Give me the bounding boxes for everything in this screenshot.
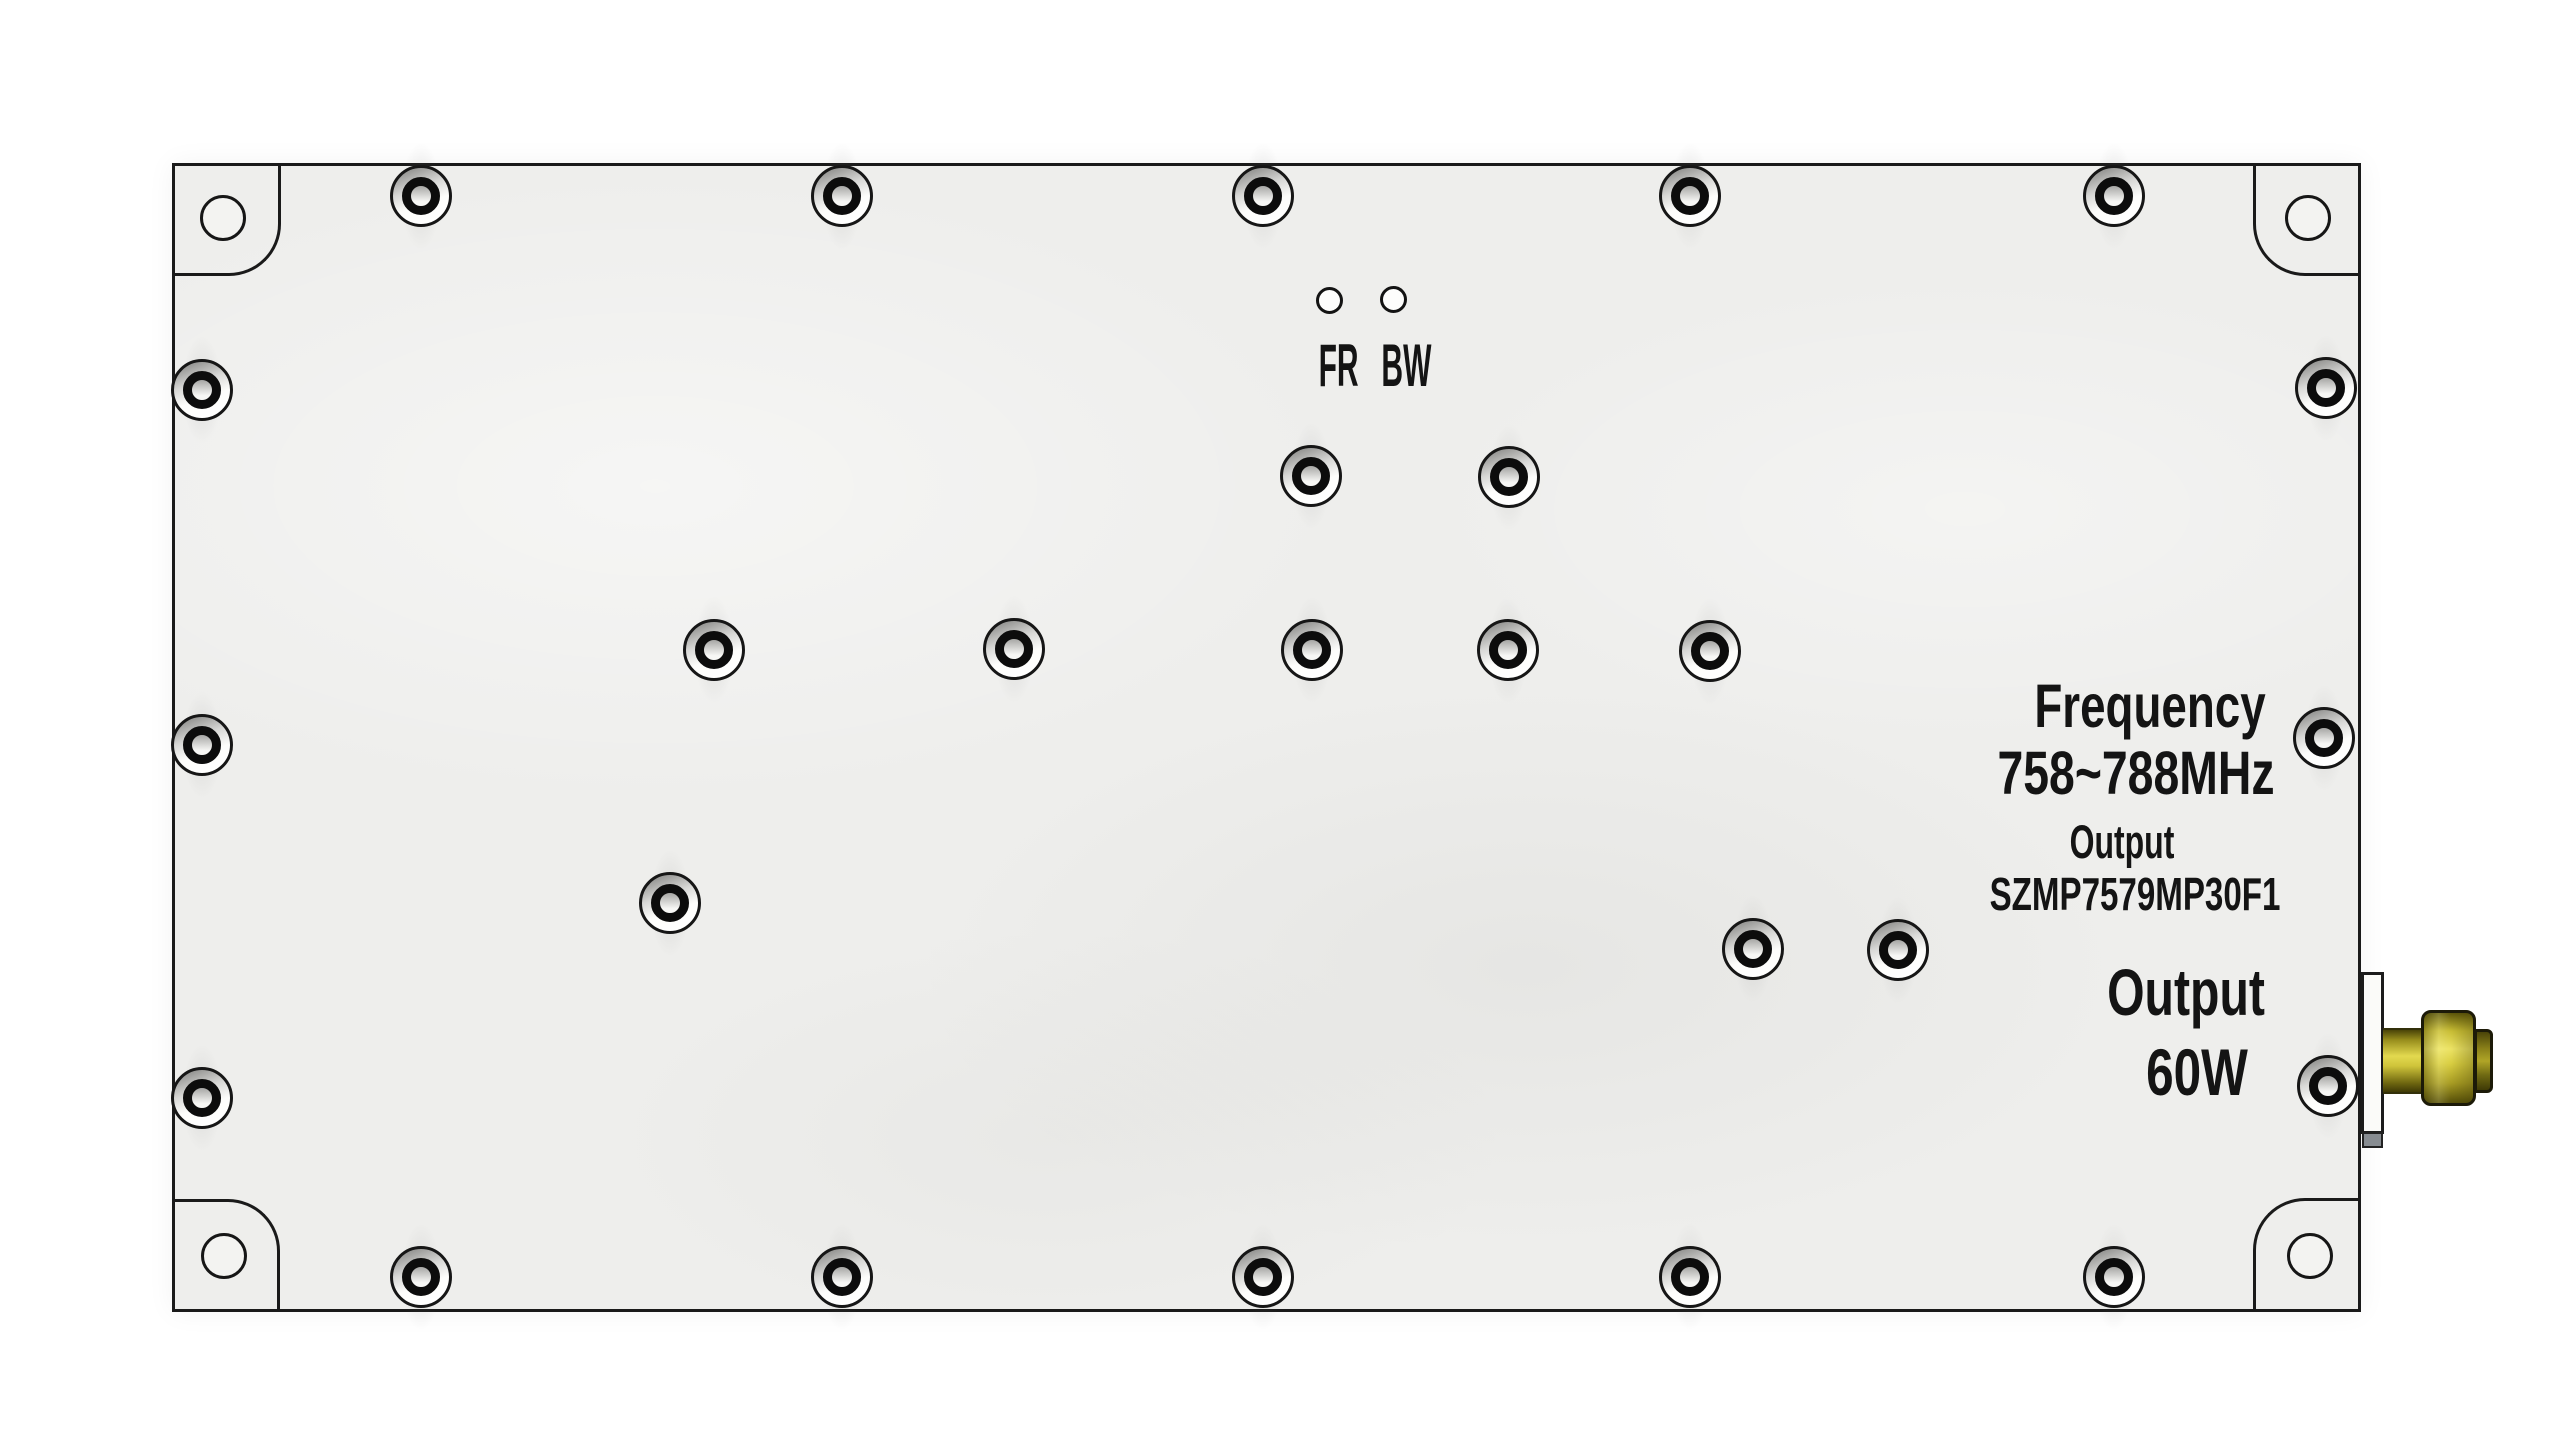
panel-screw (171, 714, 233, 776)
panel-screw (2295, 357, 2357, 419)
panel-screw (2083, 1246, 2145, 1308)
panel-screw (1659, 165, 1721, 227)
panel-screw (2083, 165, 2145, 227)
panel-screw (1477, 619, 1539, 681)
panel-screw (1722, 918, 1784, 980)
panel-screw (1232, 1246, 1294, 1308)
panel-screw (639, 872, 701, 934)
led-indicator-hole (1380, 286, 1407, 313)
led-indicator-hole (1316, 287, 1343, 314)
panel-screw (1281, 619, 1343, 681)
panel-screw (811, 1246, 873, 1308)
product-image: FR BW Frequency 758~788MHz Output SZMP75… (0, 0, 2560, 1439)
corner-mounting-hole (2287, 1233, 2333, 1279)
panel-screw (1478, 446, 1540, 508)
indicator-labels: FR BW (1275, 336, 1475, 396)
panel-screw (390, 165, 452, 227)
frequency-range: 758~788MHz (1908, 743, 2364, 804)
frequency-title: Frequency (1925, 676, 2375, 737)
panel-screw (683, 619, 745, 681)
corner-mounting-hole (200, 195, 246, 241)
output-title: Output (1967, 959, 2405, 1025)
panel-screw (1232, 165, 1294, 227)
output-power: 60W (1972, 1039, 2422, 1105)
corner-mounting-hole (2285, 195, 2331, 241)
model-number: SZMP7579MP30F1 (1919, 871, 2351, 917)
panel-screw (1280, 445, 1342, 507)
panel-screw (811, 165, 873, 227)
panel-screw (390, 1246, 452, 1308)
panel-screw (1867, 919, 1929, 981)
corner-mounting-hole (201, 1233, 247, 1279)
panel-screw (1679, 620, 1741, 682)
panel-screw (171, 359, 233, 421)
output-caption: Output (1918, 818, 2326, 865)
panel-screw (983, 618, 1045, 680)
panel-screw (171, 1067, 233, 1129)
panel-screw (1659, 1246, 1721, 1308)
